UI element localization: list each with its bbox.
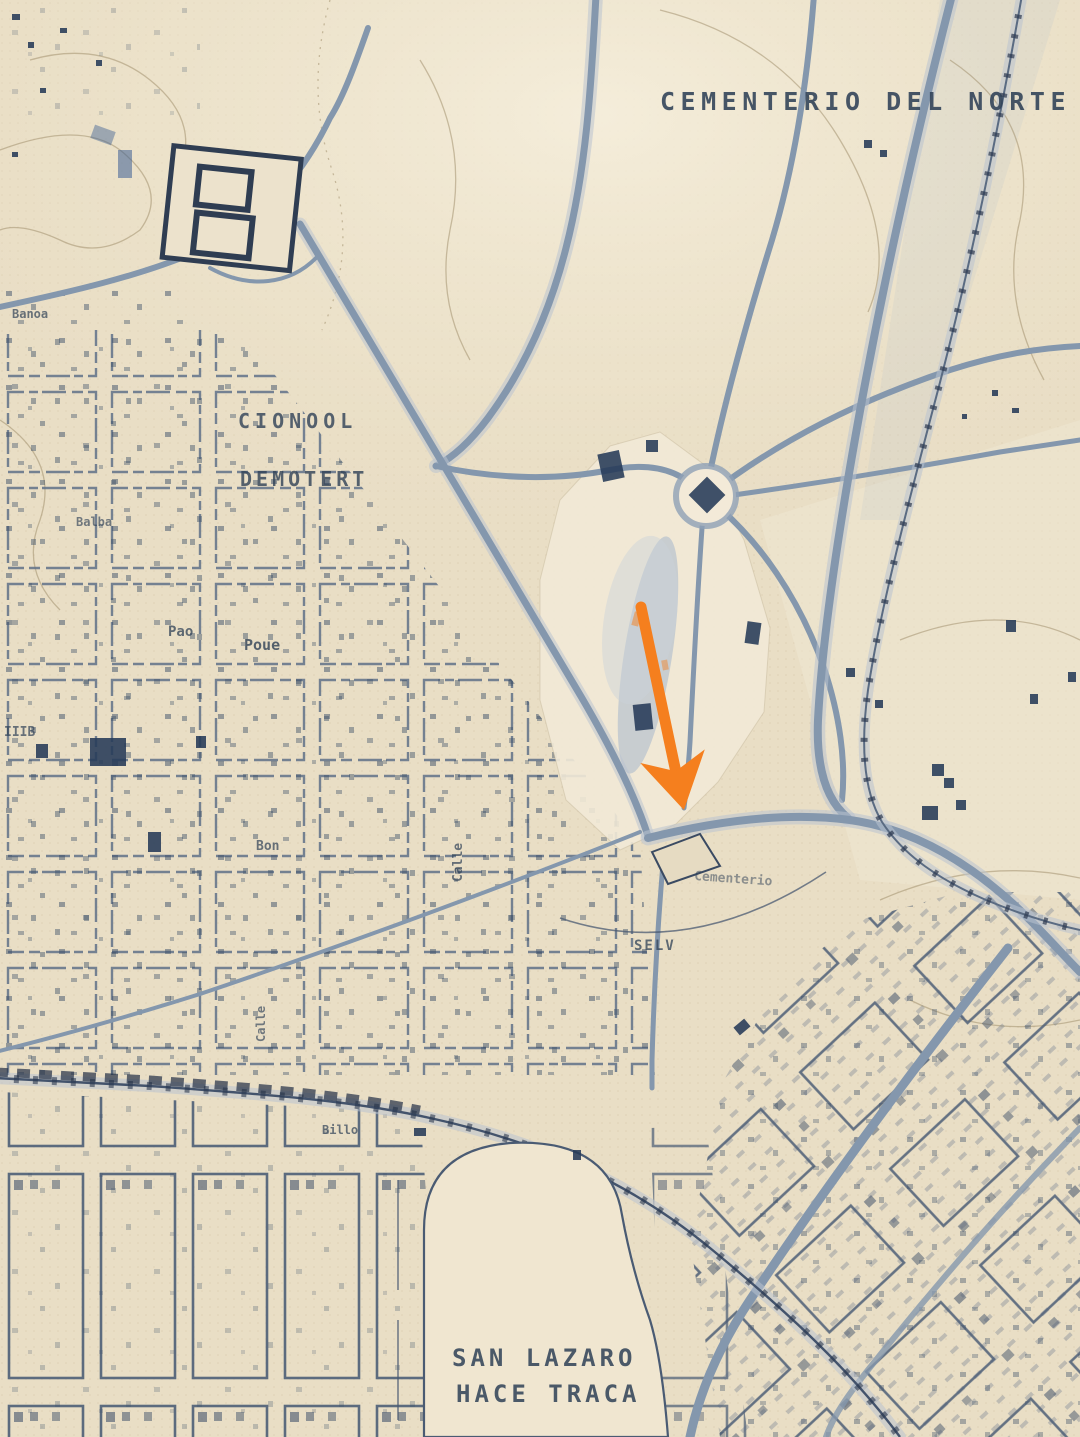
building-mark [12, 14, 20, 20]
building-mark [60, 28, 67, 33]
map-screenshot: CEMENTERIO DEL NORTECIONOOLDEMOTERTSAN L… [0, 0, 1080, 1437]
building-mark [28, 42, 34, 48]
walled-compound-icon [162, 146, 301, 271]
map-label: IIIB [4, 725, 35, 740]
building-mark [1012, 408, 1019, 413]
building-mark [573, 1150, 581, 1160]
map-label: DEMOTERT [240, 467, 368, 491]
map-canvas: CEMENTERIO DEL NORTECIONOOLDEMOTERTSAN L… [0, 0, 1080, 1437]
map-label: Calle [254, 1006, 268, 1042]
building-mark [633, 703, 654, 731]
building-mark [90, 738, 126, 766]
map-label: CIONOOL [238, 409, 357, 433]
building-mark [196, 736, 206, 748]
building-mark [846, 668, 855, 677]
building-mark [148, 832, 161, 852]
building-mark [962, 414, 967, 419]
building-mark [1006, 620, 1016, 632]
building-mark [414, 1128, 426, 1136]
building-mark [1068, 672, 1076, 682]
map-label: HACE TRACA [456, 1380, 641, 1408]
map-label: Balba [76, 515, 112, 529]
building-mark [646, 440, 658, 452]
building-mark [118, 150, 132, 178]
building-mark [96, 60, 102, 66]
map-label: Calle [451, 843, 466, 882]
building-mark [956, 800, 966, 810]
building-mark [1030, 694, 1038, 704]
map-label: Poue [244, 636, 280, 654]
building-mark [36, 744, 48, 758]
building-mark [864, 140, 872, 148]
building-mark [922, 806, 938, 820]
map-label: Billo [322, 1123, 358, 1137]
building-mark [944, 778, 954, 788]
map-label: SAN LAZARO [452, 1344, 637, 1372]
building-mark [40, 88, 46, 93]
map-label: SELV [634, 938, 676, 954]
building-mark [12, 152, 18, 157]
map-label: Banoa [12, 307, 48, 321]
building-mark [932, 764, 944, 776]
building-mark [875, 700, 883, 708]
map-label: Pao [168, 624, 193, 640]
building-mark [992, 390, 998, 396]
building-mark [880, 150, 887, 157]
map-label: Bon [256, 839, 279, 854]
map-label: CEMENTERIO DEL NORTE [660, 87, 1071, 116]
